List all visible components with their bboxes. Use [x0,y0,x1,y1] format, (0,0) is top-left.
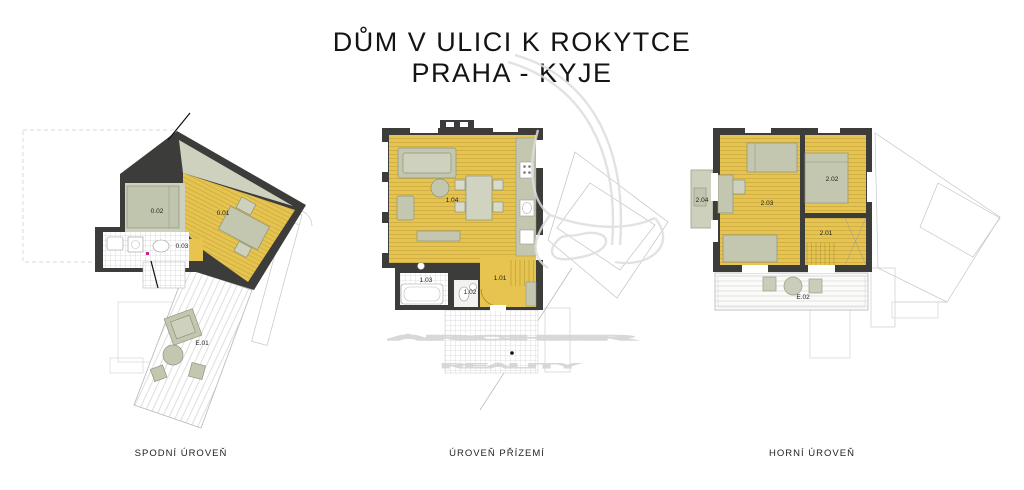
vent [446,122,454,127]
room-label: 0.01 [217,210,230,217]
stairs [143,262,185,288]
caption-ground-level: ÚROVEŇ PŘÍZEMÍ [449,448,545,459]
caption-lower-level: SPODNÍ ÚROVEŇ [135,448,228,459]
floor-plan-ground-level: 1.04 1.03 1.02 1.01 [370,110,680,420]
room-label: 2.01 [820,230,833,237]
terrace-e01 [134,268,252,428]
room-label: E.02 [796,294,810,301]
floor-plan-lower-level: 0.02 0.01 0.03 E.01 [0,110,340,440]
terrace-e02 [715,273,868,310]
room-label: 2.04 [696,197,709,204]
hall-101 [480,257,536,311]
kitchen [516,138,536,256]
room-label: 0.02 [151,208,164,215]
room-label: E.01 [195,340,209,347]
chimney [440,120,474,130]
room-label: 1.03 [420,277,433,284]
room-label: 0.03 [176,243,189,250]
page-title: DŮM V ULICI K ROKYTCE PRAHA - KYJE [0,27,1024,89]
floor-plan-sheet: DŮM V ULICI K ROKYTCE PRAHA - KYJE [0,0,1024,490]
room-label: 2.02 [826,176,839,183]
room-label: 1.04 [446,197,459,204]
title-line-1: DŮM V ULICI K ROKYTCE [0,27,1024,58]
hall-201 [805,218,866,265]
room-label: 2.03 [761,200,774,207]
vent [460,122,468,127]
room-label: 1.01 [494,275,507,282]
title-line-2: PRAHA - KYJE [0,58,1024,89]
floor-plan-upper-level: 2.04 2.03 2.02 2.01 E.02 [685,110,1005,360]
caption-upper-level: HORNÍ ÚROVEŇ [769,448,855,459]
entry-porch [445,310,538,373]
room-label: 1.02 [464,289,477,296]
